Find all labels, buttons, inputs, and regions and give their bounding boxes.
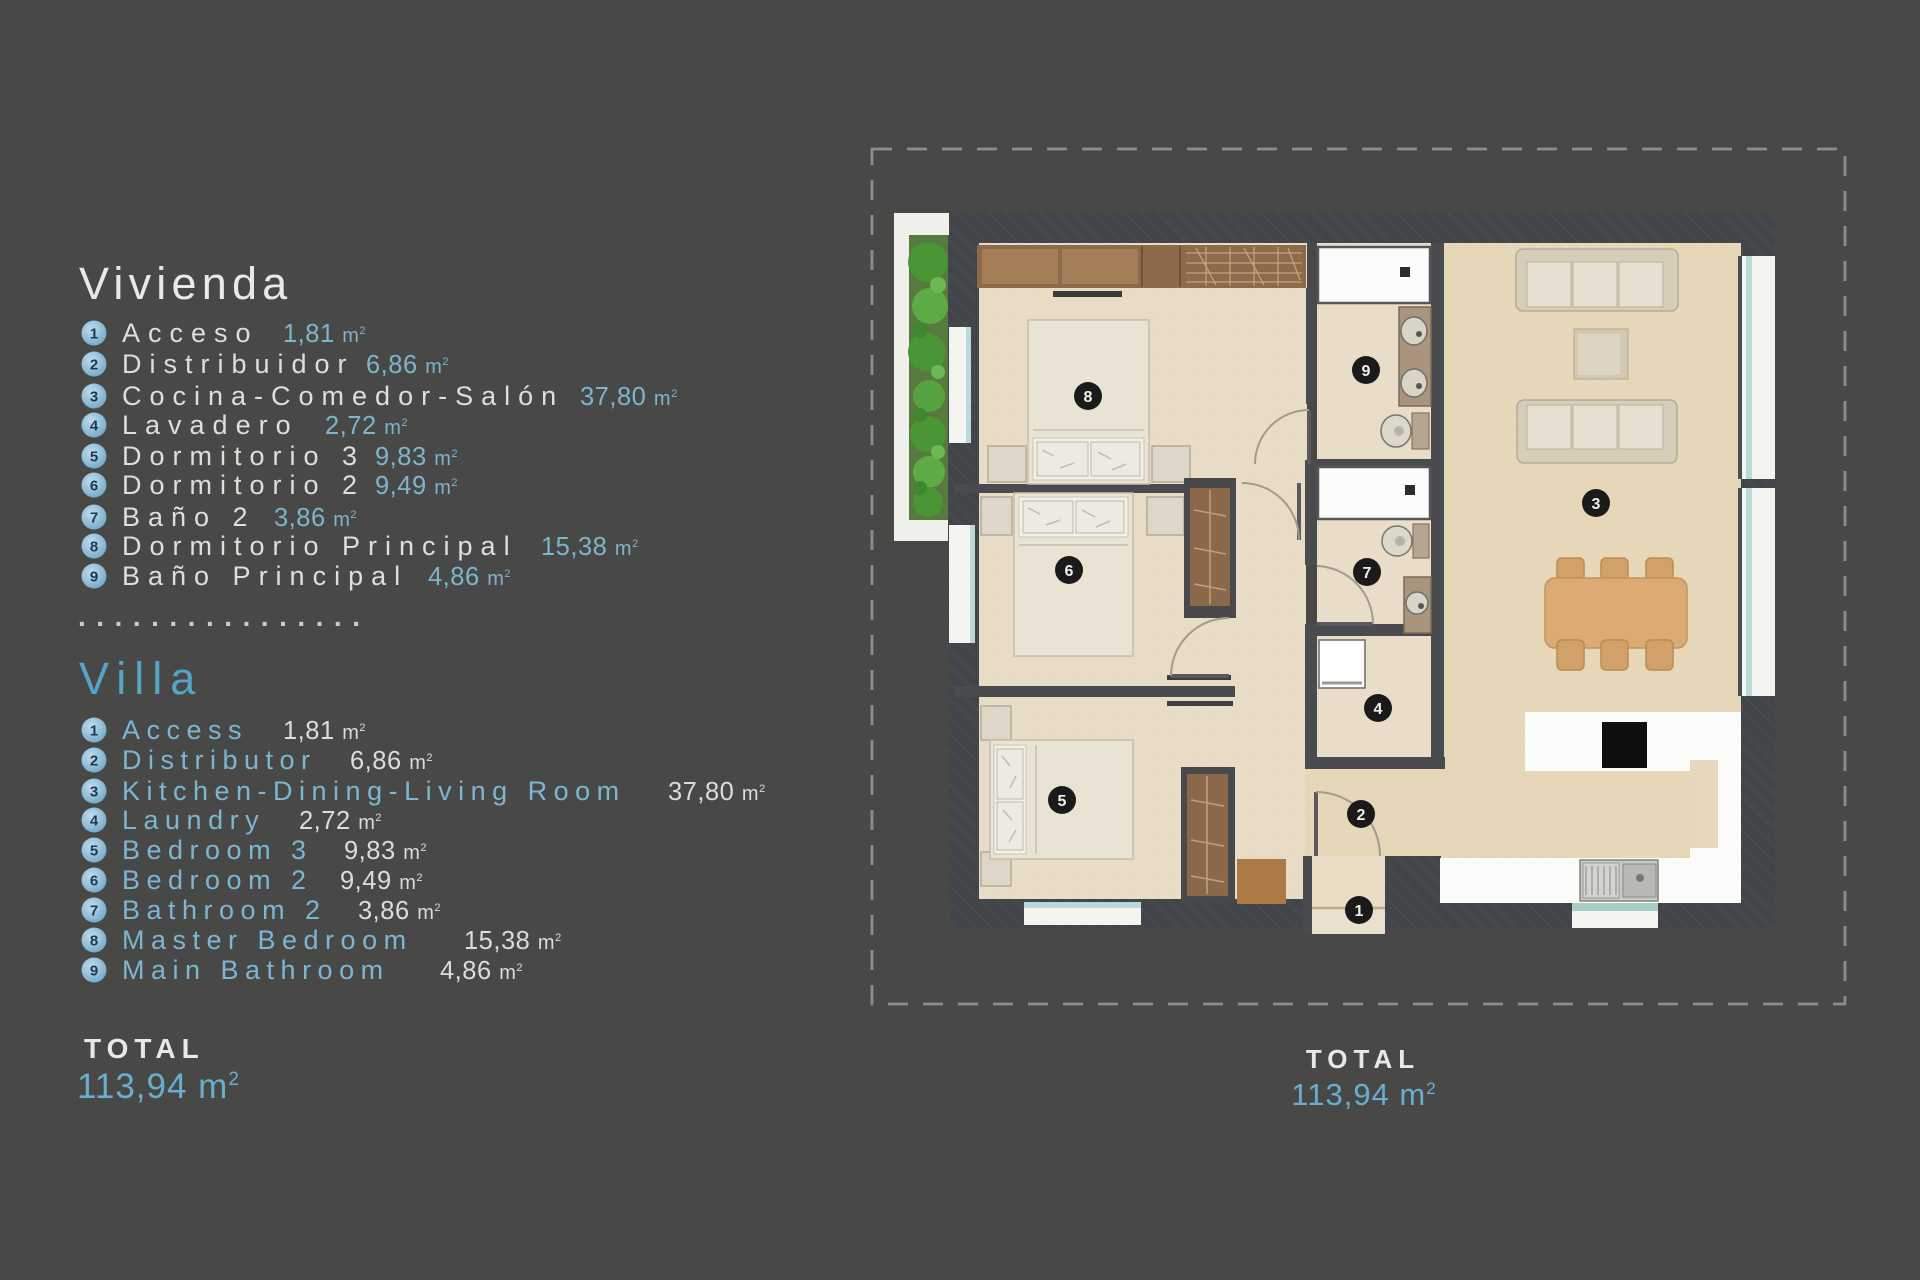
svg-text:4: 4 <box>1374 701 1383 718</box>
svg-text:Laundry: Laundry <box>122 805 265 835</box>
svg-text:7: 7 <box>90 903 98 920</box>
svg-text:Bedroom 3: Bedroom 3 <box>122 835 313 865</box>
svg-text:2,72 m2: 2,72 m2 <box>299 807 382 835</box>
svg-text:37,80 m2: 37,80 m2 <box>580 383 678 411</box>
svg-text:9: 9 <box>90 569 98 586</box>
svg-text:4,86 m2: 4,86 m2 <box>428 563 511 591</box>
svg-text:9,83 m2: 9,83 m2 <box>375 443 458 471</box>
svg-text:9,83 m2: 9,83 m2 <box>344 837 427 865</box>
svg-text:7: 7 <box>1363 565 1372 582</box>
svg-text:37,80 m2: 37,80 m2 <box>668 778 766 806</box>
svg-text:4: 4 <box>90 418 99 435</box>
svg-text:Cocina-Comedor-Salón: Cocina-Comedor-Salón <box>122 381 564 411</box>
svg-text:5: 5 <box>1058 793 1067 810</box>
svg-text:2: 2 <box>1357 807 1366 824</box>
svg-text:Villa: Villa <box>79 653 203 704</box>
svg-text:9: 9 <box>1362 363 1371 380</box>
svg-text:6,86 m2: 6,86 m2 <box>366 351 449 379</box>
svg-text:Vivienda: Vivienda <box>79 258 292 309</box>
svg-text:8: 8 <box>90 539 98 556</box>
svg-text:TOTAL: TOTAL <box>84 1033 205 1064</box>
svg-text:Access: Access <box>122 715 248 745</box>
svg-text:9,49 m2: 9,49 m2 <box>340 867 423 895</box>
svg-text:3: 3 <box>1592 496 1601 513</box>
svg-text:Main Bathroom: Main Bathroom <box>122 955 390 985</box>
svg-text:7: 7 <box>90 510 98 527</box>
svg-text:Dormitorio 2: Dormitorio 2 <box>122 470 365 500</box>
svg-text:3: 3 <box>90 389 98 406</box>
svg-text:4: 4 <box>90 813 99 830</box>
svg-text:................: ................ <box>78 601 370 632</box>
svg-text:Acceso: Acceso <box>122 318 259 348</box>
svg-text:9: 9 <box>90 963 98 980</box>
svg-text:4,86 m2: 4,86 m2 <box>440 957 523 985</box>
svg-text:Dormitorio Principal: Dormitorio Principal <box>122 531 518 561</box>
svg-text:Lavadero: Lavadero <box>122 410 299 440</box>
svg-text:113,94 m2: 113,94 m2 <box>77 1067 240 1106</box>
svg-text:Baño Principal: Baño Principal <box>122 561 408 591</box>
svg-text:6,86 m2: 6,86 m2 <box>350 747 433 775</box>
svg-text:6: 6 <box>90 873 98 890</box>
svg-text:Kitchen-Dining-Living Room: Kitchen-Dining-Living Room <box>122 776 626 806</box>
svg-text:15,38 m2: 15,38 m2 <box>464 927 562 955</box>
svg-text:113,94 m2: 113,94 m2 <box>1291 1077 1436 1112</box>
svg-text:3,86 m2: 3,86 m2 <box>358 897 441 925</box>
svg-text:15,38 m2: 15,38 m2 <box>541 533 639 561</box>
svg-text:5: 5 <box>90 449 98 466</box>
svg-text:8: 8 <box>1084 389 1093 406</box>
svg-text:Bedroom 2: Bedroom 2 <box>122 865 313 895</box>
svg-text:3,86 m2: 3,86 m2 <box>274 504 357 532</box>
svg-text:6: 6 <box>1065 563 1074 580</box>
svg-text:5: 5 <box>90 843 98 860</box>
svg-text:3: 3 <box>90 784 98 801</box>
svg-text:Dormitorio 3: Dormitorio 3 <box>122 441 365 471</box>
svg-text:1: 1 <box>1355 903 1364 920</box>
svg-text:Bathroom 2: Bathroom 2 <box>122 895 327 925</box>
svg-text:2,72 m2: 2,72 m2 <box>325 412 408 440</box>
svg-text:8: 8 <box>90 933 98 950</box>
svg-text:Distribuidor: Distribuidor <box>122 349 355 379</box>
svg-text:1: 1 <box>90 326 98 343</box>
svg-text:TOTAL: TOTAL <box>1306 1044 1420 1074</box>
svg-text:Distributor: Distributor <box>122 745 317 775</box>
svg-text:Baño 2: Baño 2 <box>122 502 256 532</box>
svg-text:2: 2 <box>90 357 98 374</box>
svg-text:1: 1 <box>90 723 98 740</box>
svg-text:1,81 m2: 1,81 m2 <box>283 320 366 348</box>
svg-text:9,49 m2: 9,49 m2 <box>375 472 458 500</box>
svg-text:1,81 m2: 1,81 m2 <box>283 717 366 745</box>
svg-text:6: 6 <box>90 478 98 495</box>
svg-text:2: 2 <box>90 753 98 770</box>
svg-text:Master Bedroom: Master Bedroom <box>122 925 413 955</box>
